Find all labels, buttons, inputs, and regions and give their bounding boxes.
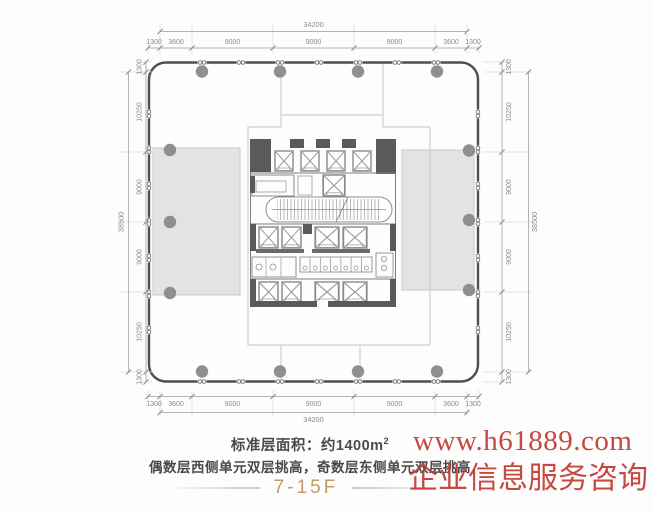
- floor-range-label: 7-15F: [274, 477, 339, 499]
- service-core: [250, 139, 396, 308]
- floorplan-page: 34200 1300 3600 9000 9000 9000 3600 1300…: [0, 0, 652, 512]
- column-icon: [274, 65, 286, 77]
- dim-label: 9000: [387, 39, 403, 46]
- dim-label: 1300: [506, 59, 513, 75]
- dim-label: 9000: [387, 401, 403, 408]
- dim-label: 1300: [137, 59, 144, 75]
- dim-label: 10250: [506, 322, 513, 342]
- elevator-icon: [259, 282, 278, 302]
- column-icon: [463, 214, 475, 226]
- elevator-icon: [323, 175, 345, 196]
- dim-label: 3600: [443, 401, 459, 408]
- dim-label: 9000: [506, 249, 513, 265]
- divider-line-left: [163, 487, 260, 489]
- dim-total-label: 34200: [303, 20, 324, 29]
- elevator-icon: [353, 151, 371, 171]
- elevator-bank-bottom: [250, 279, 396, 308]
- column-icon: [352, 365, 364, 377]
- dim-label: 3600: [168, 39, 184, 46]
- dim-label: 9000: [306, 401, 322, 408]
- dim-label: 1300: [146, 401, 162, 408]
- elevator-icon: [315, 282, 338, 302]
- elevator-icon: [259, 227, 278, 248]
- dim-label: 1300: [465, 39, 481, 46]
- dim-label: 9000: [137, 249, 144, 265]
- dim-label: 9000: [306, 39, 322, 46]
- escalator-stair-icon: [266, 197, 392, 222]
- dim-label: 1300: [465, 401, 481, 408]
- toilet-rooms: [252, 253, 393, 277]
- elevator-icon: [301, 151, 319, 171]
- dim-label: 9000: [225, 39, 241, 46]
- dim-label: 9000: [225, 401, 241, 408]
- dim-label: 10250: [137, 322, 144, 342]
- dim-label: 3600: [168, 401, 184, 408]
- column-icon: [463, 284, 475, 296]
- dim-chain-bottom: 1300 3600 9000 9000 9000 3600 1300 34200: [145, 390, 481, 424]
- elevator-bank-top: [250, 139, 396, 174]
- column-icon: [274, 365, 286, 377]
- dim-label: 10250: [506, 102, 513, 122]
- elevator-icon: [343, 227, 366, 248]
- elevator-icon: [275, 151, 293, 171]
- dim-chain-right: 1300 10250 9000 9000 10250 1300 38500: [484, 59, 539, 385]
- column-icon: [164, 216, 176, 228]
- dim-label: 1300: [506, 369, 513, 385]
- elevator-bank-middle: [250, 224, 396, 253]
- dim-label: 1300: [137, 369, 144, 385]
- elevator-icon: [343, 282, 366, 302]
- dim-total-label: 38500: [530, 212, 539, 233]
- column-icon: [352, 65, 364, 77]
- dim-total-label: 34200: [303, 415, 324, 424]
- column-icon: [196, 365, 208, 377]
- dim-label: 3600: [443, 39, 459, 46]
- column-icon: [431, 65, 443, 77]
- column-icon: [463, 144, 475, 156]
- elevator-icon: [327, 151, 345, 171]
- dim-total-label: 38500: [117, 212, 126, 233]
- elevator-icon: [282, 227, 301, 248]
- dim-label: 9000: [506, 179, 513, 195]
- dim-label: 9000: [137, 179, 144, 195]
- dim-chain-left: 1300 10250 9000 9000 10250 1300 38500: [117, 59, 153, 385]
- area-value: 标准层面积：约1400m: [231, 438, 384, 454]
- square-meter-superscript: 2: [384, 436, 390, 446]
- column-icon: [164, 144, 176, 156]
- column-icon: [164, 287, 176, 299]
- column-icon: [431, 365, 443, 377]
- dim-chain-top: 34200 1300 3600 9000 9000 9000 3600 1300: [145, 20, 481, 54]
- column-icon: [196, 65, 208, 77]
- elevator-icon: [282, 282, 301, 302]
- elevator-icon: [315, 227, 338, 248]
- watermark-caption: 企业信息服务咨询: [408, 453, 648, 497]
- dim-label: 10250: [137, 102, 144, 122]
- dim-label: 1300: [146, 39, 162, 46]
- core-middle-rooms: [250, 175, 345, 196]
